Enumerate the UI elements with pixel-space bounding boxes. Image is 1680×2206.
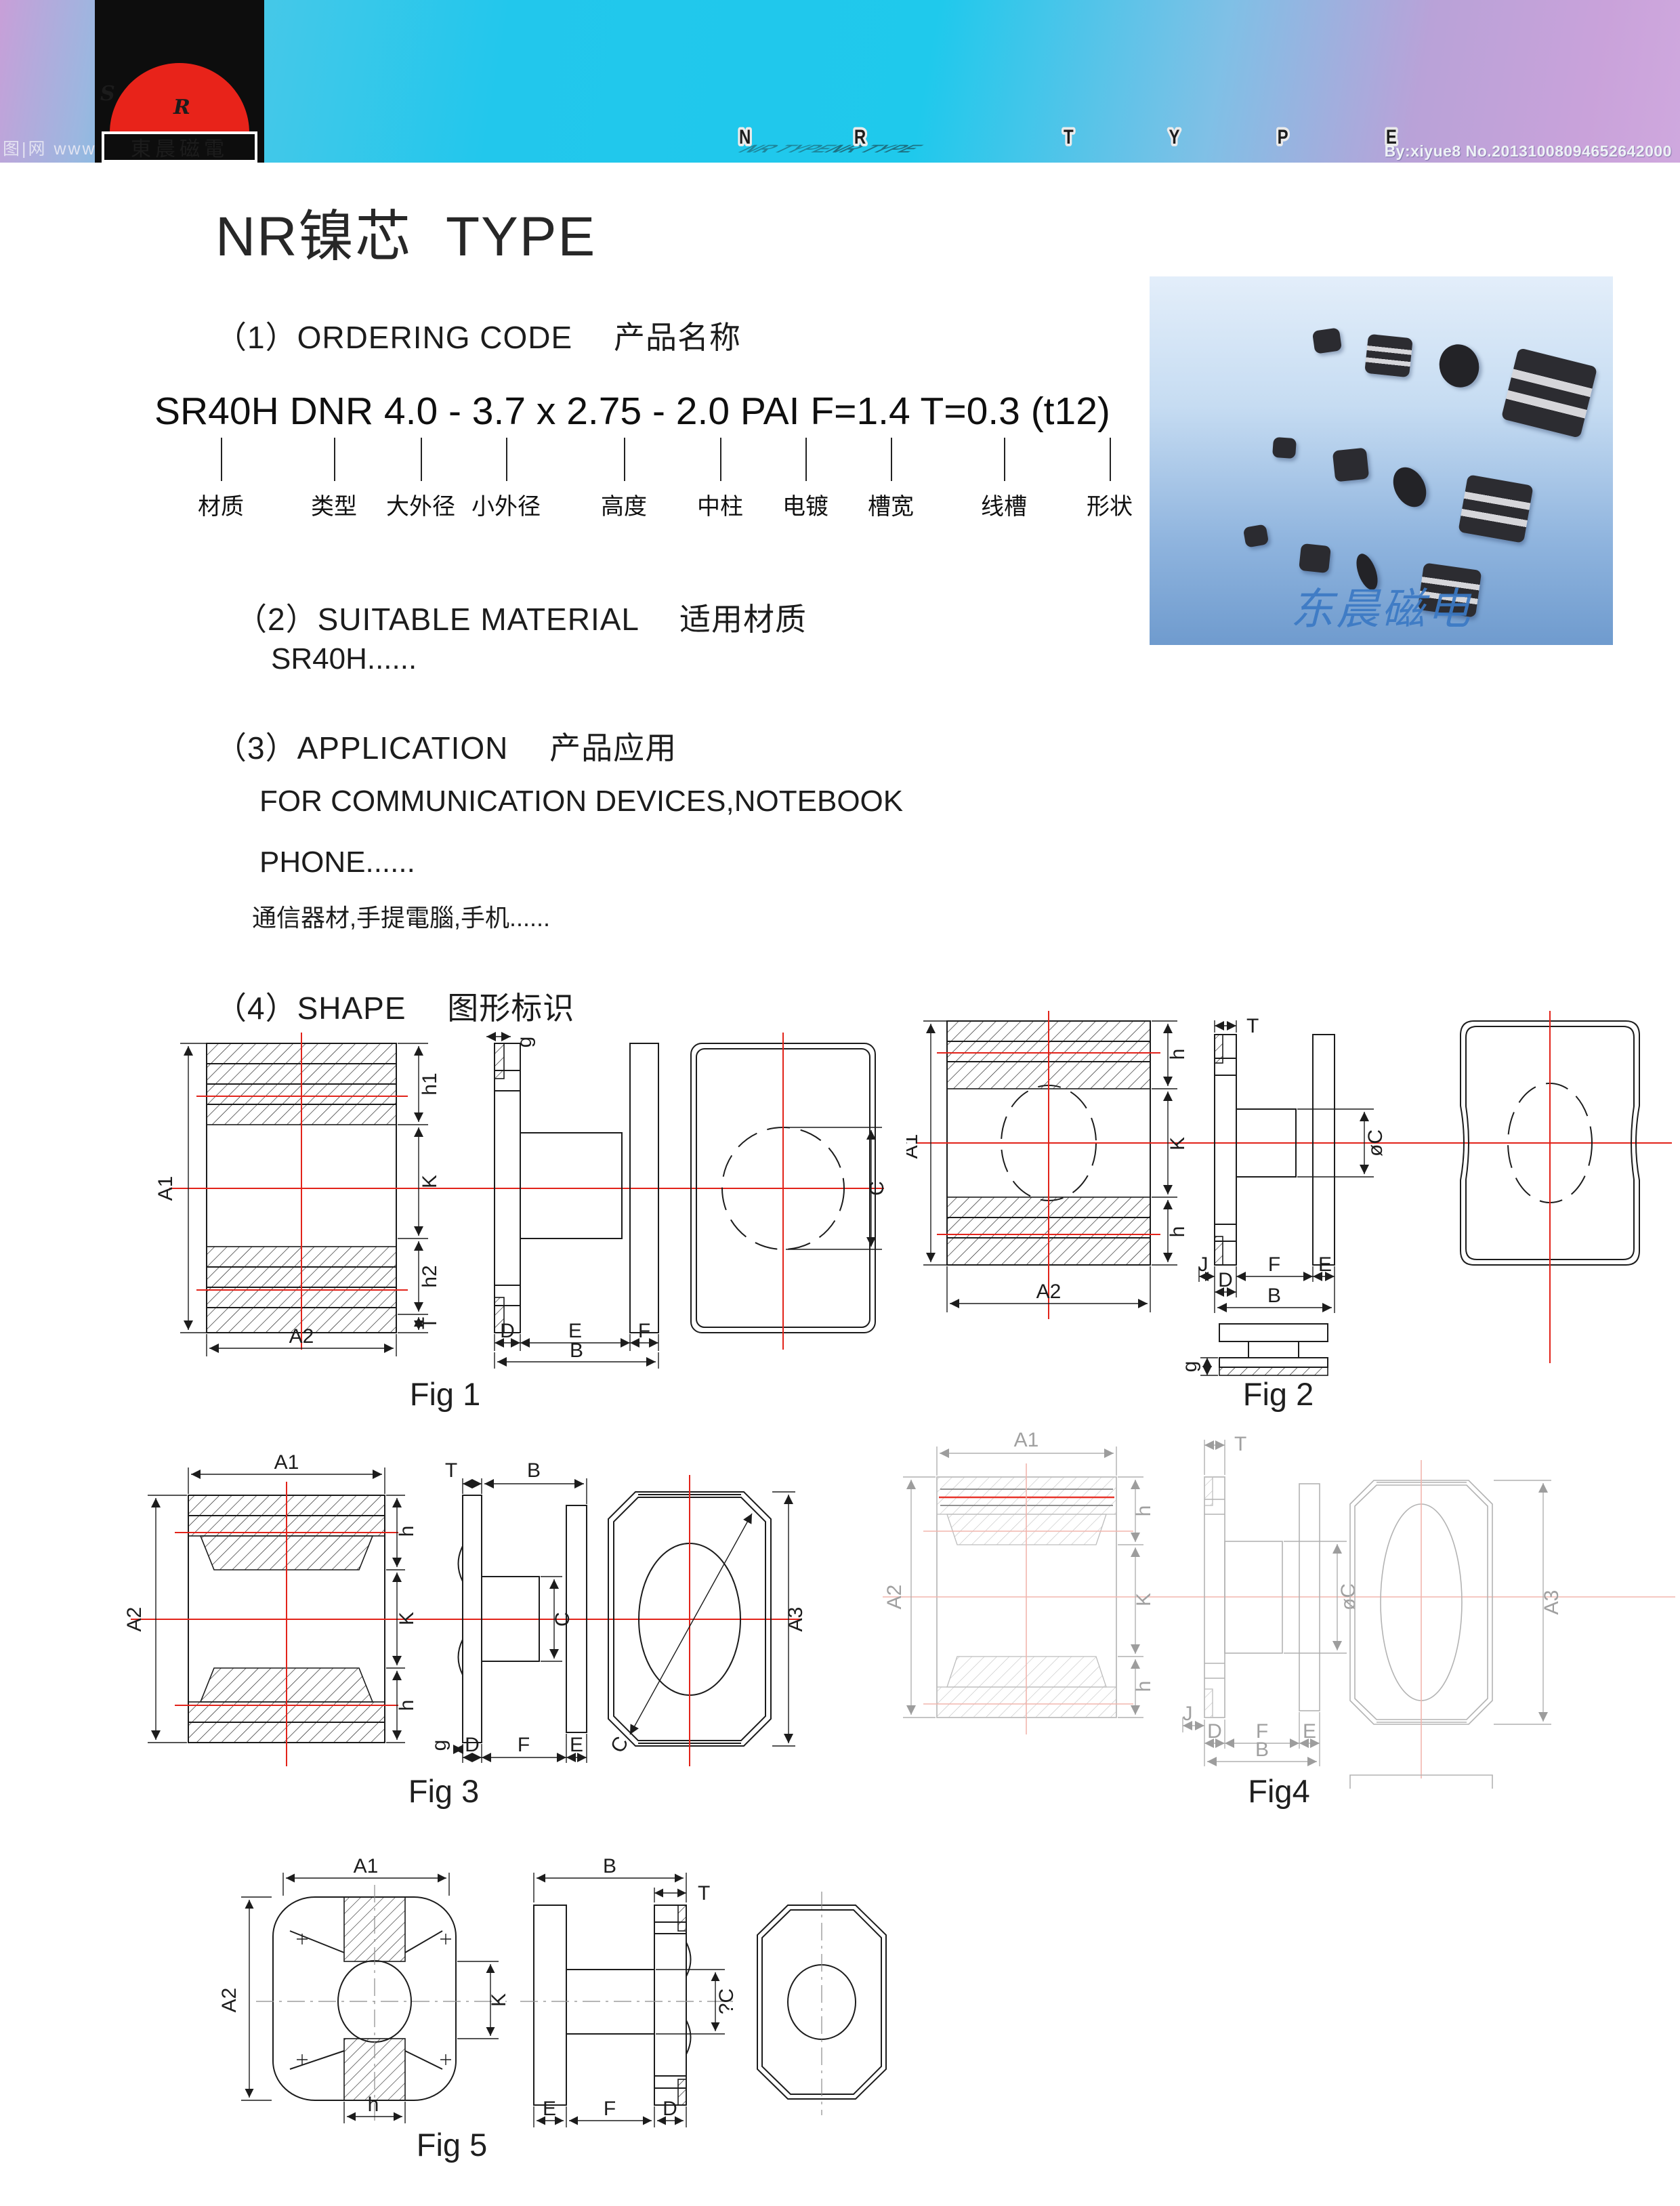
inductor-component — [1332, 448, 1370, 482]
section4-heading: （4）SHAPE 图形标识 — [215, 984, 574, 1028]
ordering-tick — [891, 438, 892, 481]
dim-label: g — [1179, 1361, 1201, 1373]
dim-label: C — [551, 1612, 574, 1627]
fig2-drawing: A1 A2 h K h T øC J F E D B — [906, 1011, 1679, 1390]
dim-label: h1 — [419, 1073, 441, 1095]
banner-letter-r: R — [854, 126, 866, 148]
product-photo: 东晨磁电 — [1150, 276, 1613, 645]
fig1-drawing: A1 A2 h1 K h2 T g D E F B — [156, 1031, 887, 1370]
dim-label: A2 — [289, 1325, 314, 1348]
page-title: NR镍芯 TYPE — [215, 191, 596, 272]
dim-label: A2 — [883, 1585, 906, 1610]
dim-label: B — [570, 1339, 583, 1362]
section2-body: SR40H...... — [271, 642, 417, 676]
dim-label: T — [698, 1882, 710, 1905]
banner-title-art: NR TYPE NR TYPE N R T Y P E — [728, 5, 1589, 161]
dim-label: h2 — [419, 1265, 441, 1287]
dim-label: E — [1303, 1720, 1316, 1743]
dim-label: A1 — [156, 1176, 177, 1201]
section3-line1: FOR COMMUNICATION DEVICES,NOTEBOOK — [259, 785, 903, 818]
dim-label: A3 — [1540, 1590, 1563, 1615]
dim-label: F — [604, 2098, 616, 2120]
dim-label: A3 — [784, 1607, 805, 1632]
dim-label: A1 — [354, 1858, 379, 1877]
fig4-drawing: A1 A2 h K h T øC — [873, 1419, 1679, 1789]
dim-label: A2 — [123, 1607, 146, 1632]
dim-label: E — [570, 1734, 583, 1756]
ordering-label: 材质 — [198, 488, 244, 521]
header-banner: S R 東晨磁電 — [0, 0, 1680, 163]
dim-label: E — [543, 2098, 556, 2120]
dim-label: g — [428, 1740, 450, 1751]
ordering-label: 类型 — [311, 488, 357, 521]
dim-label: T — [419, 1317, 441, 1329]
section1-heading: （1）ORDERING CODE 产品名称 — [215, 313, 741, 358]
dim-label: ?C — [715, 1989, 738, 2014]
section3-line3: 通信器材,手提電腦,手机...... — [252, 898, 550, 934]
dim-label: B — [1255, 1739, 1269, 1761]
ordering-tick — [805, 438, 807, 481]
dim-label: øC — [1364, 1129, 1387, 1157]
inductor-component — [1387, 461, 1433, 512]
dim-label: A2 — [1036, 1281, 1062, 1303]
dim-label: A1 — [906, 1134, 922, 1159]
dim-label: B — [603, 1858, 616, 1877]
dim-label: T — [445, 1459, 457, 1482]
dim-label: h — [396, 1526, 418, 1537]
ordering-code: SR40H DNR 4.0 - 3.7 x 2.75 - 2.0 PAI F=1… — [154, 389, 1110, 434]
ordering-label: 中柱 — [697, 488, 743, 521]
banner-watermark-left: 图|网 www — [3, 136, 97, 160]
dim-label: D — [465, 1734, 480, 1756]
dim-label: D — [1218, 1269, 1233, 1291]
dim-label: øC — [1337, 1583, 1360, 1610]
dim-label: h — [1133, 1505, 1155, 1517]
dim-label: g — [513, 1037, 536, 1048]
ordering-tick — [624, 438, 625, 481]
dim-label: B — [527, 1459, 541, 1482]
ordering-tick — [221, 438, 222, 481]
dim-label: A2 — [218, 1988, 240, 2013]
dim-label: J — [1183, 1703, 1193, 1725]
dim-label: T — [1234, 1433, 1246, 1455]
dim-label: A1 — [1014, 1429, 1039, 1451]
dim-label: J — [1198, 1253, 1209, 1276]
inductor-component — [1434, 339, 1485, 393]
dim-label: D — [663, 2098, 677, 2120]
dim-label: F — [518, 1734, 530, 1756]
dim-label: T — [1246, 1015, 1259, 1037]
section3-heading: （3）APPLICATION 产品应用 — [215, 724, 677, 768]
ordering-label: 高度 — [601, 488, 647, 521]
fig4-caption: Fig4 — [1211, 1772, 1347, 1810]
inductor-component — [1458, 474, 1533, 543]
section2-heading: （2）SUITABLE MATERIAL 适用材质 — [236, 595, 807, 640]
logo-company-name: 東晨磁電 — [131, 138, 228, 161]
ordering-tick — [421, 438, 422, 481]
product-watermark: 东晨磁电 — [1150, 575, 1613, 637]
banner-credit-text: By:xiyue8 No.20131008094652642000 — [1385, 142, 1672, 161]
fig3-drawing: A1 A2 h K h T B C g — [121, 1444, 805, 1776]
ordering-tick — [506, 438, 507, 481]
dim-label: D — [1207, 1720, 1222, 1743]
dim-label: C — [866, 1181, 887, 1196]
dim-label: D — [500, 1320, 515, 1342]
inductor-component — [1299, 543, 1331, 573]
dim-label: K — [396, 1612, 418, 1625]
dim-label: K — [488, 1993, 510, 2007]
dim-label: h — [1167, 1049, 1189, 1060]
fig5-drawing: A1 A2 K h B T ?C — [182, 1858, 900, 2129]
banner-letter-t: T — [1064, 126, 1074, 148]
ordering-tick — [1110, 438, 1111, 481]
dim-label: E — [1318, 1253, 1332, 1276]
dim-label: h — [396, 1700, 418, 1711]
dim-label: A1 — [274, 1451, 299, 1474]
inductor-component — [1272, 437, 1297, 459]
banner-letter-p: P — [1278, 126, 1288, 148]
fig5-caption: Fig 5 — [374, 2126, 530, 2163]
dim-label: F — [1268, 1253, 1280, 1276]
ordering-label: 电镀 — [782, 488, 828, 521]
inductor-component — [1364, 334, 1413, 378]
banner-letter-y: Y — [1169, 126, 1179, 148]
dim-label: h — [1133, 1681, 1155, 1692]
fig1-caption: Fig 1 — [374, 1375, 516, 1413]
datasheet-page: S R 東晨磁電 — [0, 0, 1680, 2206]
dim-label: K — [419, 1175, 441, 1188]
ordering-tick — [334, 438, 335, 481]
logo-letter-r: R — [173, 96, 190, 119]
dim-label: K — [1167, 1137, 1189, 1150]
ordering-label: 槽宽 — [868, 488, 914, 521]
dim-label: K — [1133, 1593, 1155, 1606]
dim-label: B — [1267, 1285, 1281, 1307]
dim-label: C — [606, 1733, 633, 1757]
ordering-label: 大外径 — [386, 488, 455, 521]
logo-letter-s: S — [100, 82, 115, 106]
fig2-caption: Fig 2 — [1207, 1375, 1349, 1413]
inductor-component — [1501, 348, 1598, 438]
dim-label: h — [368, 2094, 379, 2116]
dim-label: h — [1167, 1226, 1189, 1238]
banner-letter-n: N — [739, 126, 751, 148]
ordering-label: 形状 — [1087, 488, 1133, 521]
ordering-tick — [720, 438, 721, 481]
section3-line2: PHONE...... — [259, 846, 415, 879]
inductor-component — [1312, 327, 1342, 354]
fig3-caption: Fig 3 — [373, 1772, 515, 1810]
ordering-tick — [1004, 438, 1005, 481]
ordering-label: 线槽 — [981, 488, 1027, 521]
dim-label: F — [638, 1320, 650, 1342]
company-logo: S R 東晨磁電 — [95, 0, 264, 163]
ordering-label: 小外径 — [471, 488, 541, 521]
inductor-component — [1243, 524, 1269, 547]
